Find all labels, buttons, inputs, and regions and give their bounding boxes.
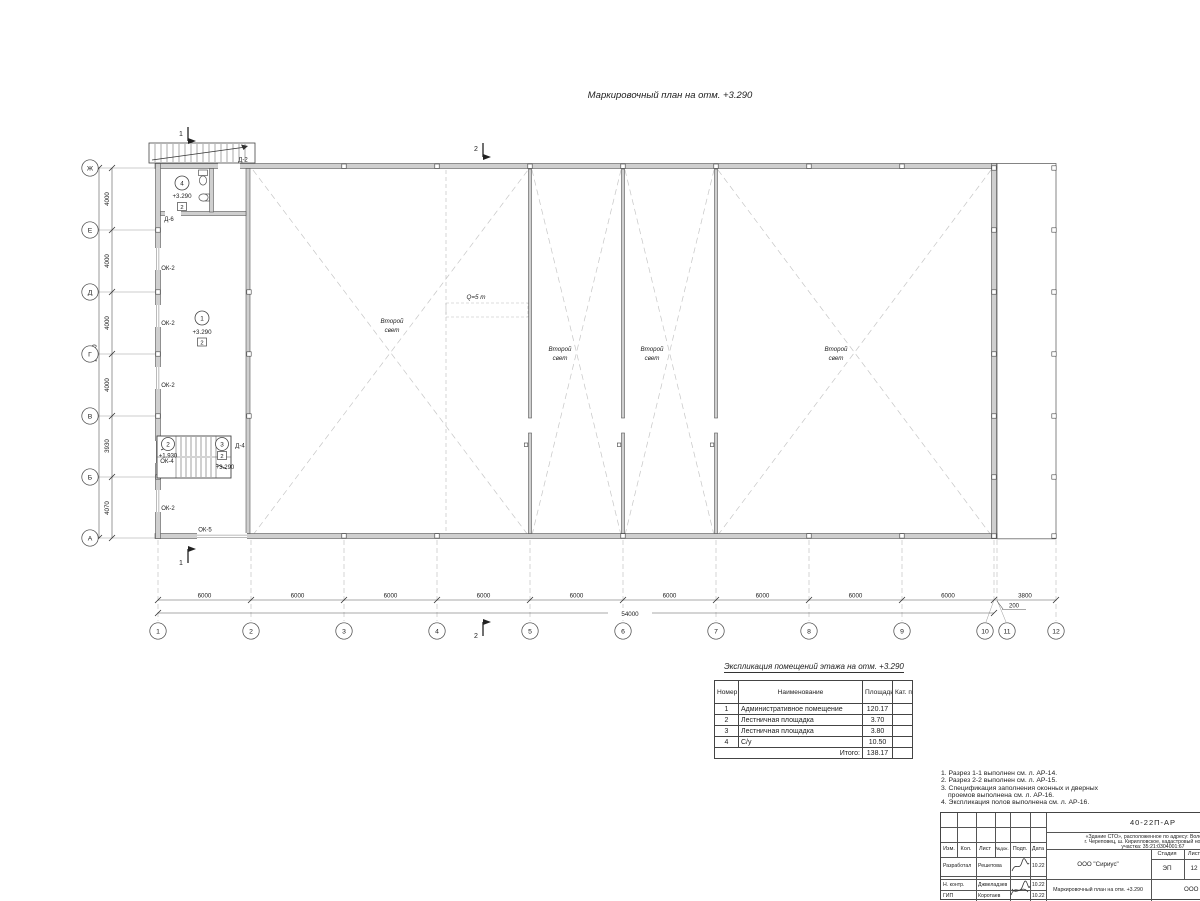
svg-text:Е: Е	[88, 227, 93, 234]
stamp-date-gip: 10.22	[1032, 893, 1045, 899]
window-ok2-label: ОК-2	[161, 383, 175, 389]
window-ok2-label: ОК-2	[161, 506, 175, 512]
col-header-name: Наименование	[739, 681, 863, 704]
svg-text:4: 4	[435, 628, 439, 635]
svg-text:6000: 6000	[570, 593, 584, 600]
window-ok5-label: ОК-5	[198, 528, 212, 534]
room-2-number: 2	[166, 441, 170, 448]
room-schedule-title: Экспликация помещений этажа на отм. +3.2…	[714, 662, 914, 671]
note-line: 2. Разрез 2-2 выполнен см. л. АР-15.	[941, 777, 1176, 784]
table-total-row: Итого: 138.17	[715, 748, 913, 759]
section-1-top: 1	[179, 131, 183, 138]
crane-zone: Q=5 т	[446, 170, 528, 535]
stamp-name-ncontrol: Джвеладзев	[978, 882, 1007, 888]
svg-text:3: 3	[342, 628, 346, 635]
wc-bowl	[199, 176, 206, 185]
dimensions-bottom: 6000 6000 6000 6000 6000 6000 6000 6000 …	[155, 593, 1059, 619]
svg-text:4000: 4000	[104, 192, 111, 206]
stamp-sheet-label: Лист	[1188, 851, 1200, 857]
stamp-col-izm: Изм.	[943, 846, 955, 852]
svg-text:6000: 6000	[756, 593, 770, 600]
door-d2-label: Д-2	[238, 158, 248, 164]
window-ok4-label: ОК-4	[160, 459, 174, 465]
room-schedule-table: Номер помещ. Наименование Площадь Кат. п…	[714, 680, 913, 759]
door-d6-label: Д-6	[164, 217, 174, 223]
svg-text:Г: Г	[88, 351, 92, 358]
stamp-col-kol: Кол.	[961, 846, 972, 852]
svg-text:А: А	[88, 535, 93, 542]
room-4-number: 4	[180, 180, 184, 187]
door-d4-label: Д-4	[235, 444, 245, 450]
stamp-name-developer: Решетова	[978, 863, 1002, 869]
svg-text:6000: 6000	[663, 593, 677, 600]
room-4-category: 2	[180, 205, 183, 211]
svg-text:6000: 6000	[849, 593, 863, 600]
room-3-number: 3	[220, 441, 224, 448]
wc-tank	[199, 170, 208, 176]
svg-text:7: 7	[714, 628, 718, 635]
svg-text:6000: 6000	[941, 593, 955, 600]
svg-text:11: 11	[1003, 628, 1010, 635]
stamp-col-list: Лист	[979, 846, 991, 852]
dim-3800: 3800	[1018, 593, 1032, 600]
stamp-sheet-value: 12	[1190, 865, 1197, 872]
stamp-stage-label: Стадия	[1157, 851, 1176, 857]
axis-extension-lines	[97, 168, 1056, 622]
svg-text:Второй: Второй	[825, 346, 849, 353]
window-ok2-label: ОК-2	[161, 321, 175, 327]
svg-text:6000: 6000	[477, 593, 491, 600]
stamp-role-developer: Разработал	[943, 863, 971, 869]
dim-200: 200	[1009, 604, 1020, 610]
stamp-org-bottom: ООО "Ал	[1184, 886, 1200, 893]
svg-text:4070: 4070	[104, 501, 111, 515]
stamp-date-ncontrol: 10.22	[1032, 882, 1045, 888]
window-ok2-label: ОК-2	[161, 266, 175, 272]
stamp-org-top: ООО "Сириус"	[1077, 861, 1119, 868]
room-1-elevation: +3.290	[192, 329, 212, 336]
col-header-number: Номер помещ.	[715, 681, 739, 704]
section-2-bottom: 2	[474, 633, 478, 640]
stamp-col-podp: Подп.	[1013, 846, 1028, 852]
section-1-bottom: 1	[179, 560, 183, 567]
svg-text:4000: 4000	[104, 316, 111, 330]
sanitary-fixtures	[199, 170, 210, 201]
room-3-category: 2	[220, 454, 223, 460]
stamp-date-developer: 10.22	[1032, 863, 1045, 869]
title-block: Изм. Кол. Лист №док. Подп. Дата Разработ…	[940, 812, 1200, 900]
section-marks: 1 1 2 2	[179, 127, 491, 640]
svg-text:10: 10	[981, 628, 989, 635]
svg-text:8: 8	[807, 628, 811, 635]
svg-text:свет: свет	[553, 355, 568, 362]
svg-text:5: 5	[528, 628, 532, 635]
total-value: 138.17	[863, 748, 893, 759]
note-line: проемов выполнена см. л. АР-16.	[941, 792, 1176, 799]
stamp-stage-value: ЭП	[1162, 865, 1171, 872]
table-header-row: Номер помещ. Наименование Площадь Кат. п…	[715, 681, 913, 704]
room-1-category: 2	[200, 341, 203, 347]
stamp-project-desc-3: участка: 35:21:0304001:67	[1121, 844, 1184, 850]
svg-text:В: В	[88, 413, 93, 420]
axis-bubbles-bottom: 1 2 3 4 5 6 7 8 9 10 11 12	[150, 623, 1064, 639]
stamp-name-gip: Коротаев	[978, 893, 1000, 899]
svg-text:Второй: Второй	[549, 346, 573, 353]
room-4-elevation: +3.290	[172, 193, 192, 200]
section-2-top: 2	[474, 146, 478, 153]
room-1-number: 1	[200, 315, 204, 322]
stamp-drawing-title: Маркировочный план на отм. +3.290	[1053, 887, 1143, 893]
note-line: 3. Спецификация заполнения оконных и две…	[941, 785, 1176, 792]
drawing-sheet: { "page": { "title": "Маркировочный план…	[0, 0, 1200, 900]
stamp-doc-number: 40-22П-АР	[1130, 818, 1176, 827]
svg-text:6000: 6000	[291, 593, 305, 600]
note-line: 4. Экспликация полов выполнена см. л. АР…	[941, 799, 1176, 806]
svg-text:1: 1	[156, 628, 160, 635]
signature-ncontrol-gip	[1009, 880, 1031, 900]
table-row: 4 С/у 10.50	[715, 737, 913, 748]
note-line: 1. Разрез 1-1 выполнен см. л. АР-14.	[941, 770, 1176, 777]
signature-developer	[1010, 858, 1030, 875]
svg-text:свет: свет	[385, 327, 400, 334]
svg-text:6000: 6000	[198, 593, 212, 600]
walls	[155, 164, 997, 539]
stamp-role-gip: ГИП	[943, 893, 953, 899]
table-row: 3 Лестничная площадка 3.80	[715, 726, 913, 737]
room-3-elevation: +3.290	[216, 465, 235, 471]
windows	[155, 248, 247, 539]
svg-text:6: 6	[621, 628, 625, 635]
svg-text:Д: Д	[88, 289, 93, 296]
second-light-labels: Второйсвет Второйсвет Второйсвет Второйс…	[381, 318, 849, 362]
table-row: 2 Лестничная площадка 3.70	[715, 715, 913, 726]
svg-text:Ж: Ж	[87, 165, 94, 172]
col-header-area: Площадь	[863, 681, 893, 704]
axis-bubbles-left: Ж Е Д Г В Б А	[82, 160, 98, 546]
table-row: 1 Административное помещение 120.17	[715, 704, 913, 715]
svg-text:3930: 3930	[104, 439, 111, 453]
sink-bowl	[199, 194, 208, 201]
crane-capacity-label: Q=5 т	[466, 294, 485, 301]
dim-total-bottom: 54000	[621, 611, 639, 618]
svg-text:9: 9	[900, 628, 904, 635]
svg-text:свет: свет	[645, 355, 660, 362]
floor-plan-svg: Q=5 т	[0, 0, 1200, 655]
svg-text:2: 2	[249, 628, 253, 635]
svg-text:6000: 6000	[384, 593, 398, 600]
svg-text:4000: 4000	[104, 254, 111, 268]
svg-text:Б: Б	[88, 474, 93, 481]
notes-block: 1. Разрез 1-1 выполнен см. л. АР-14. 2. …	[941, 770, 1176, 806]
stamp-role-ncontrol: Н. контр.	[943, 882, 964, 888]
svg-text:Второй: Второй	[641, 346, 665, 353]
svg-text:12: 12	[1052, 628, 1060, 635]
svg-text:4000: 4000	[104, 378, 111, 392]
stamp-col-data: Дата	[1032, 846, 1044, 852]
total-label: Итого:	[715, 748, 863, 759]
svg-text:Второй: Второй	[381, 318, 405, 325]
canopy-outline	[997, 164, 1056, 539]
col-header-category: Кат. пом.	[893, 681, 913, 704]
room-schedule: Экспликация помещений этажа на отм. +3.2…	[714, 662, 914, 759]
stamp-col-ndok: №док.	[995, 846, 1008, 851]
svg-text:свет: свет	[829, 355, 844, 362]
